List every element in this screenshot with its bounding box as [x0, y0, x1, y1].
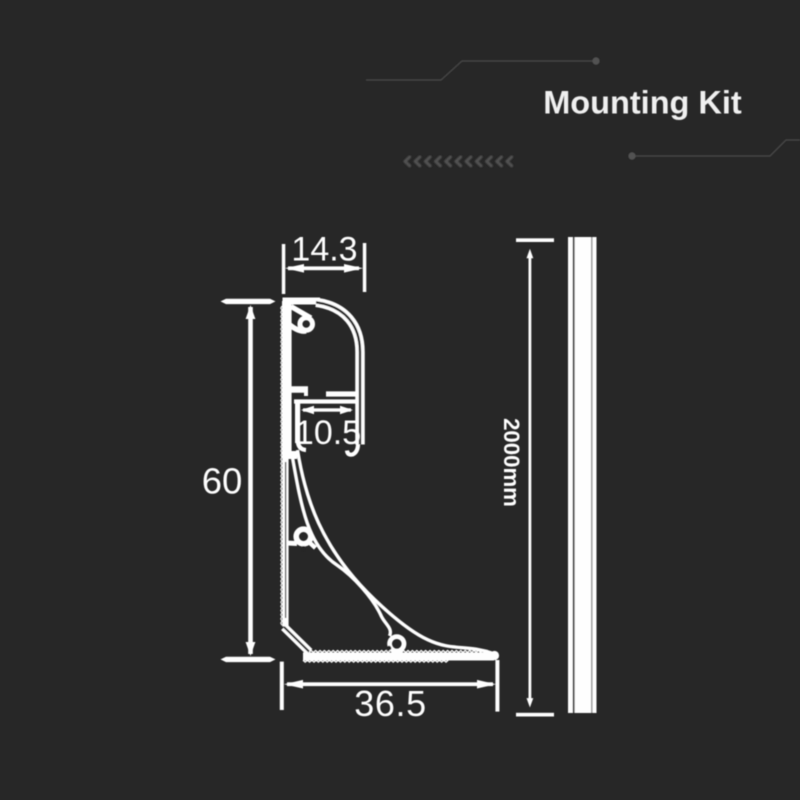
svg-text:36.5: 36.5: [354, 683, 426, 724]
svg-text:14.3: 14.3: [291, 231, 357, 269]
svg-text:2000mm: 2000mm: [499, 418, 524, 507]
svg-text:60: 60: [202, 461, 243, 502]
svg-text:10.5: 10.5: [295, 414, 361, 452]
svg-text:Mounting Kit: Mounting Kit: [543, 85, 742, 121]
